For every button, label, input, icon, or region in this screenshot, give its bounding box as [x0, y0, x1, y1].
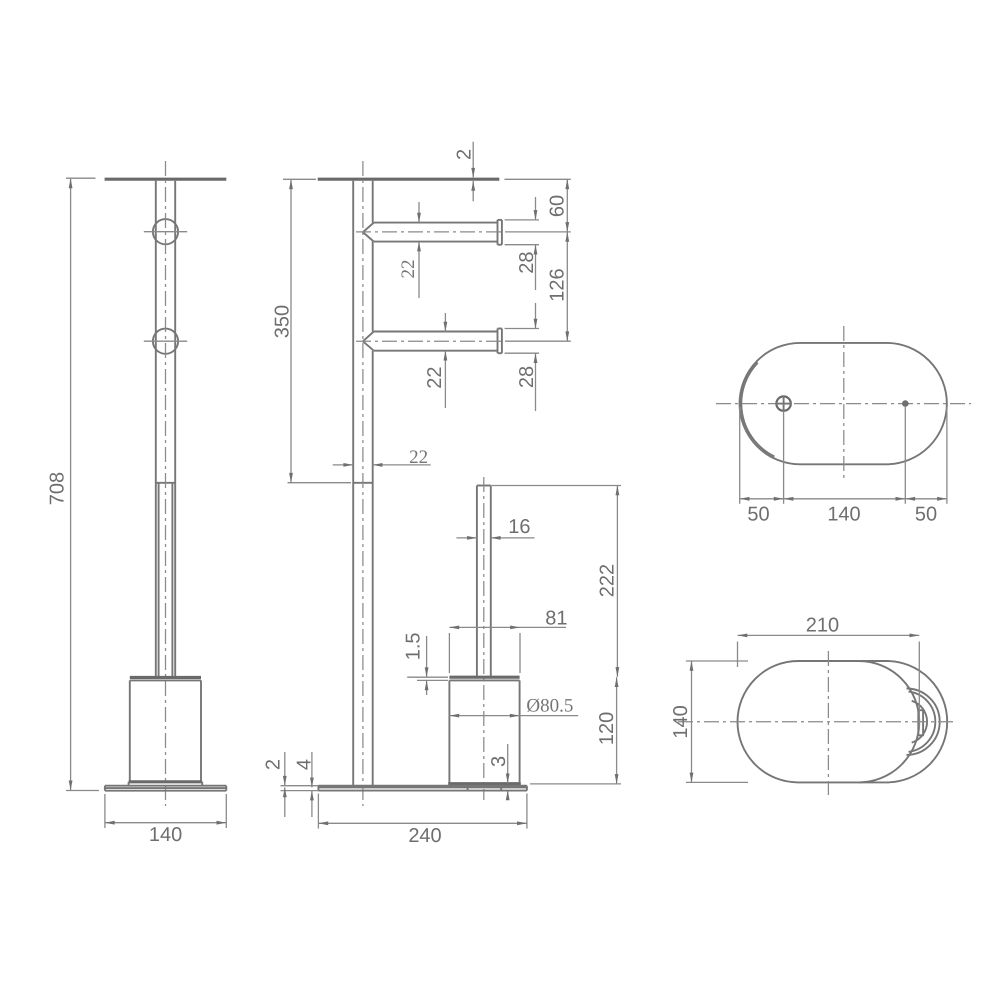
- svg-text:22: 22: [409, 447, 428, 468]
- svg-text:60: 60: [547, 195, 569, 217]
- svg-text:22: 22: [398, 260, 419, 279]
- svg-text:81: 81: [545, 607, 567, 629]
- svg-text:140: 140: [149, 824, 182, 846]
- svg-text:1.5: 1.5: [403, 632, 425, 660]
- svg-text:28: 28: [516, 366, 538, 388]
- svg-text:Ø80.5: Ø80.5: [526, 696, 573, 717]
- svg-text:3: 3: [488, 756, 510, 767]
- svg-text:140: 140: [670, 705, 692, 738]
- svg-text:126: 126: [547, 268, 569, 301]
- svg-text:50: 50: [747, 504, 769, 526]
- svg-text:2: 2: [454, 149, 476, 160]
- svg-text:22: 22: [424, 366, 446, 388]
- svg-text:28: 28: [516, 251, 538, 273]
- svg-text:222: 222: [597, 564, 619, 597]
- svg-text:50: 50: [915, 504, 937, 526]
- svg-text:2: 2: [263, 759, 285, 770]
- svg-text:16: 16: [508, 516, 530, 538]
- svg-text:240: 240: [408, 825, 441, 847]
- svg-text:210: 210: [806, 615, 839, 637]
- svg-text:140: 140: [827, 504, 860, 526]
- svg-text:120: 120: [596, 712, 618, 745]
- svg-text:4: 4: [294, 759, 316, 770]
- svg-text:350: 350: [271, 305, 293, 338]
- svg-text:708: 708: [46, 472, 68, 505]
